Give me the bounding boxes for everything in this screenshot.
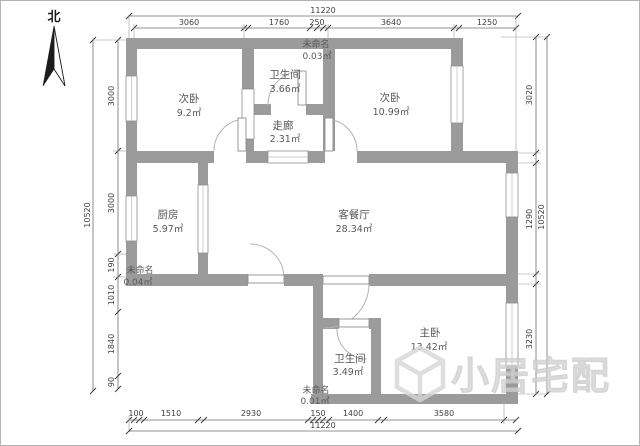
room-area-unnamed-top: 0.03㎡ (302, 51, 331, 62)
room-area-unnamed-left: 0.04㎡ (123, 277, 152, 288)
dim-bottom: 100 1510 2930 150 1400 3580 11220 (126, 404, 521, 434)
room-labels: 次卧 9.2㎡ 卫生间 3.66㎡ 未命名 0.03㎡ 次卧 10.99㎡ 走廊… (123, 38, 447, 407)
dim-bottom-seg-2: 2930 (241, 409, 261, 418)
room-area-kitchen: 5.97㎡ (153, 224, 184, 235)
dim-bottom-seg-3: 150 (310, 409, 325, 418)
window-kitchen-pass (198, 185, 208, 253)
dim-left-seg-2: 190 (107, 257, 116, 272)
dim-top-total: 11220 (310, 6, 335, 15)
room-area-corridor: 2.31㎡ (270, 134, 301, 145)
room-name-unnamed-bottom: 未命名 (302, 384, 329, 396)
dim-top-seg-3: 3640 (381, 18, 401, 27)
room-area-living-dining: 28.34㎡ (336, 224, 373, 235)
room-name-unnamed-top: 未命名 (302, 38, 329, 50)
room-area-unnamed-bottom: 0.01㎡ (300, 396, 329, 407)
dim-bottom-seg-0: 100 (128, 409, 143, 418)
dim-bottom-seg-5: 3580 (434, 409, 454, 418)
dim-bottom-seg-1: 1510 (161, 409, 181, 418)
room-area-bathroom-top: 3.66㎡ (270, 84, 301, 95)
floor-plan-svg: 次卧 9.2㎡ 卫生间 3.66㎡ 未命名 0.03㎡ 次卧 10.99㎡ 走廊… (1, 1, 640, 446)
window-left-kitchen (126, 196, 137, 241)
room-area-bedroom2-left: 9.2㎡ (177, 108, 202, 119)
room-area-bedroom2-right: 10.99㎡ (373, 107, 410, 118)
opening-corridor-living (268, 151, 308, 163)
dim-left: 10520 3000 3000 190 1010 1840 90 (83, 37, 126, 394)
room-name-bathroom-top: 卫生间 (269, 68, 301, 81)
room-name-bedroom2-left: 次卧 (179, 92, 200, 105)
dim-left-seg-1: 3000 (107, 193, 116, 213)
dim-top-seg-2: 250 (309, 18, 324, 27)
watermark-logo-icon (397, 348, 443, 400)
room-name-unnamed-left: 未命名 (126, 264, 153, 276)
north-arrow-icon (43, 26, 65, 86)
dim-right-seg-0: 3020 (525, 85, 534, 105)
room-name-master-bedroom: 主卧 (420, 326, 441, 339)
dim-left-seg-0: 3000 (107, 86, 116, 106)
dim-right-seg-2: 3230 (525, 329, 534, 349)
watermark-text: 小居宅配 (451, 354, 611, 398)
watermark: 小居宅配 (397, 348, 611, 400)
dim-right-total: 10520 (537, 204, 546, 229)
dim-left-seg-3: 1010 (107, 285, 116, 305)
floor-plan-image: 次卧 9.2㎡ 卫生间 3.66㎡ 未命名 0.03㎡ 次卧 10.99㎡ 走廊… (0, 0, 640, 446)
window-living (506, 173, 518, 217)
window-left-bedroom (126, 76, 137, 121)
compass: 北 (43, 10, 65, 86)
room-name-bathroom-bottom: 卫生间 (334, 352, 366, 365)
door-bedroom2-left (214, 118, 246, 151)
dim-bottom-seg-4: 1400 (343, 409, 363, 418)
dim-bottom-total: 11220 (310, 421, 335, 430)
window-right-bedroom (451, 66, 463, 123)
door-bedroom2-right (325, 118, 357, 151)
door-entrance (248, 244, 284, 283)
dim-left-seg-5: 90 (107, 377, 116, 387)
north-label: 北 (47, 10, 60, 25)
room-name-corridor: 走廊 (273, 119, 294, 132)
dim-left-seg-4: 1840 (107, 334, 116, 354)
dim-top-seg-4: 1250 (477, 18, 497, 27)
dim-left-total: 10520 (83, 202, 92, 227)
room-name-living-dining: 客餐厅 (338, 208, 370, 221)
room-name-kitchen: 厨房 (158, 208, 179, 221)
dim-right-seg-1: 1290 (525, 209, 534, 229)
dim-top-seg-0: 3060 (179, 18, 199, 27)
room-area-bathroom-bottom: 3.49㎡ (333, 367, 364, 378)
dim-top-seg-1: 1760 (269, 18, 289, 27)
room-name-bedroom2-right: 次卧 (380, 91, 401, 104)
